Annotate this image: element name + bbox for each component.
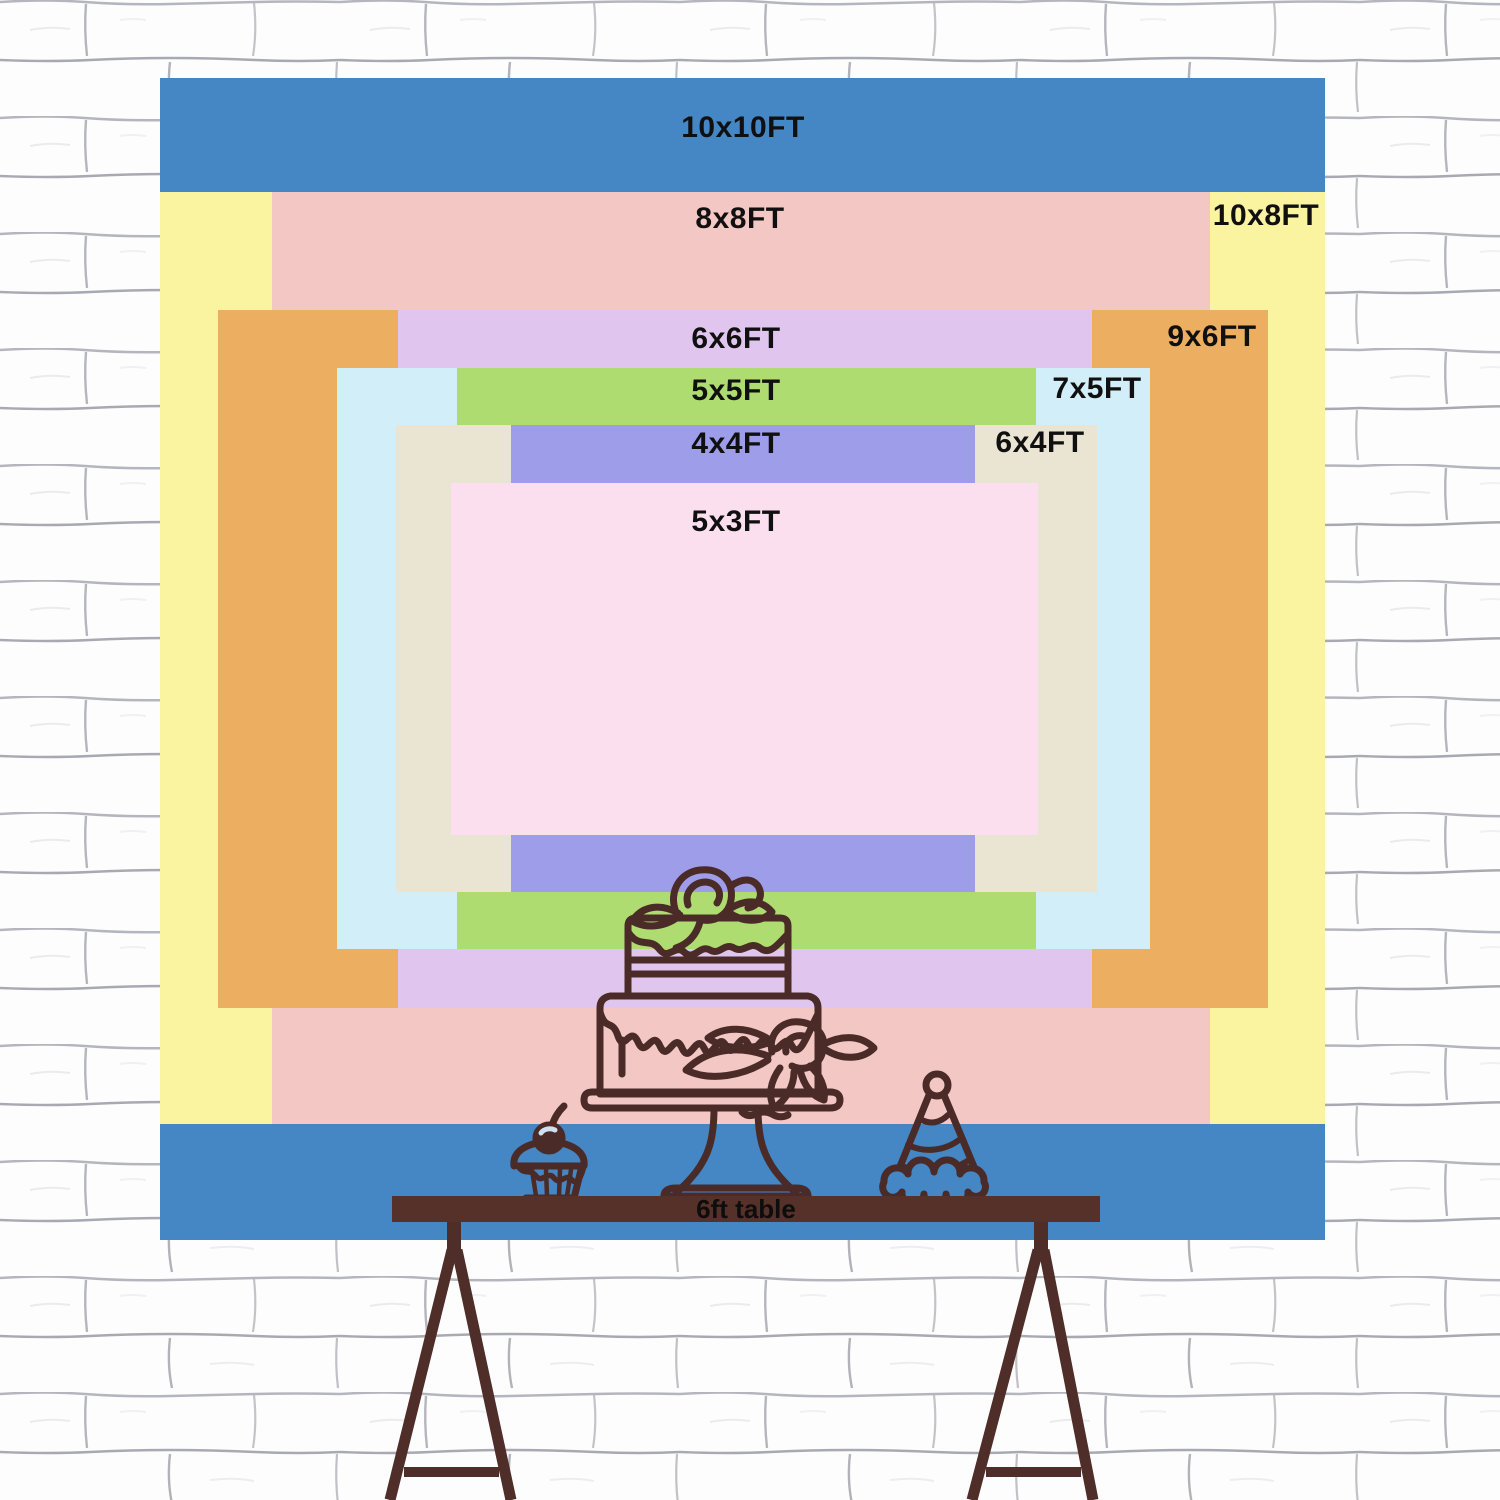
table-trestle-legs	[390, 1220, 1093, 1500]
table-top: 6ft table	[392, 1196, 1100, 1222]
birthday-cake-icon	[584, 870, 874, 1196]
party-hat-icon	[883, 1074, 986, 1205]
backdrop-size-chart: 10x10FT 10x8FT 8x8FT 9x6FT 6x6FT 7x5FT 5…	[0, 0, 1500, 1500]
cupcake-icon	[514, 1106, 584, 1198]
decor-illustrations	[0, 0, 1500, 1500]
table-label: 6ft table	[696, 1196, 796, 1222]
